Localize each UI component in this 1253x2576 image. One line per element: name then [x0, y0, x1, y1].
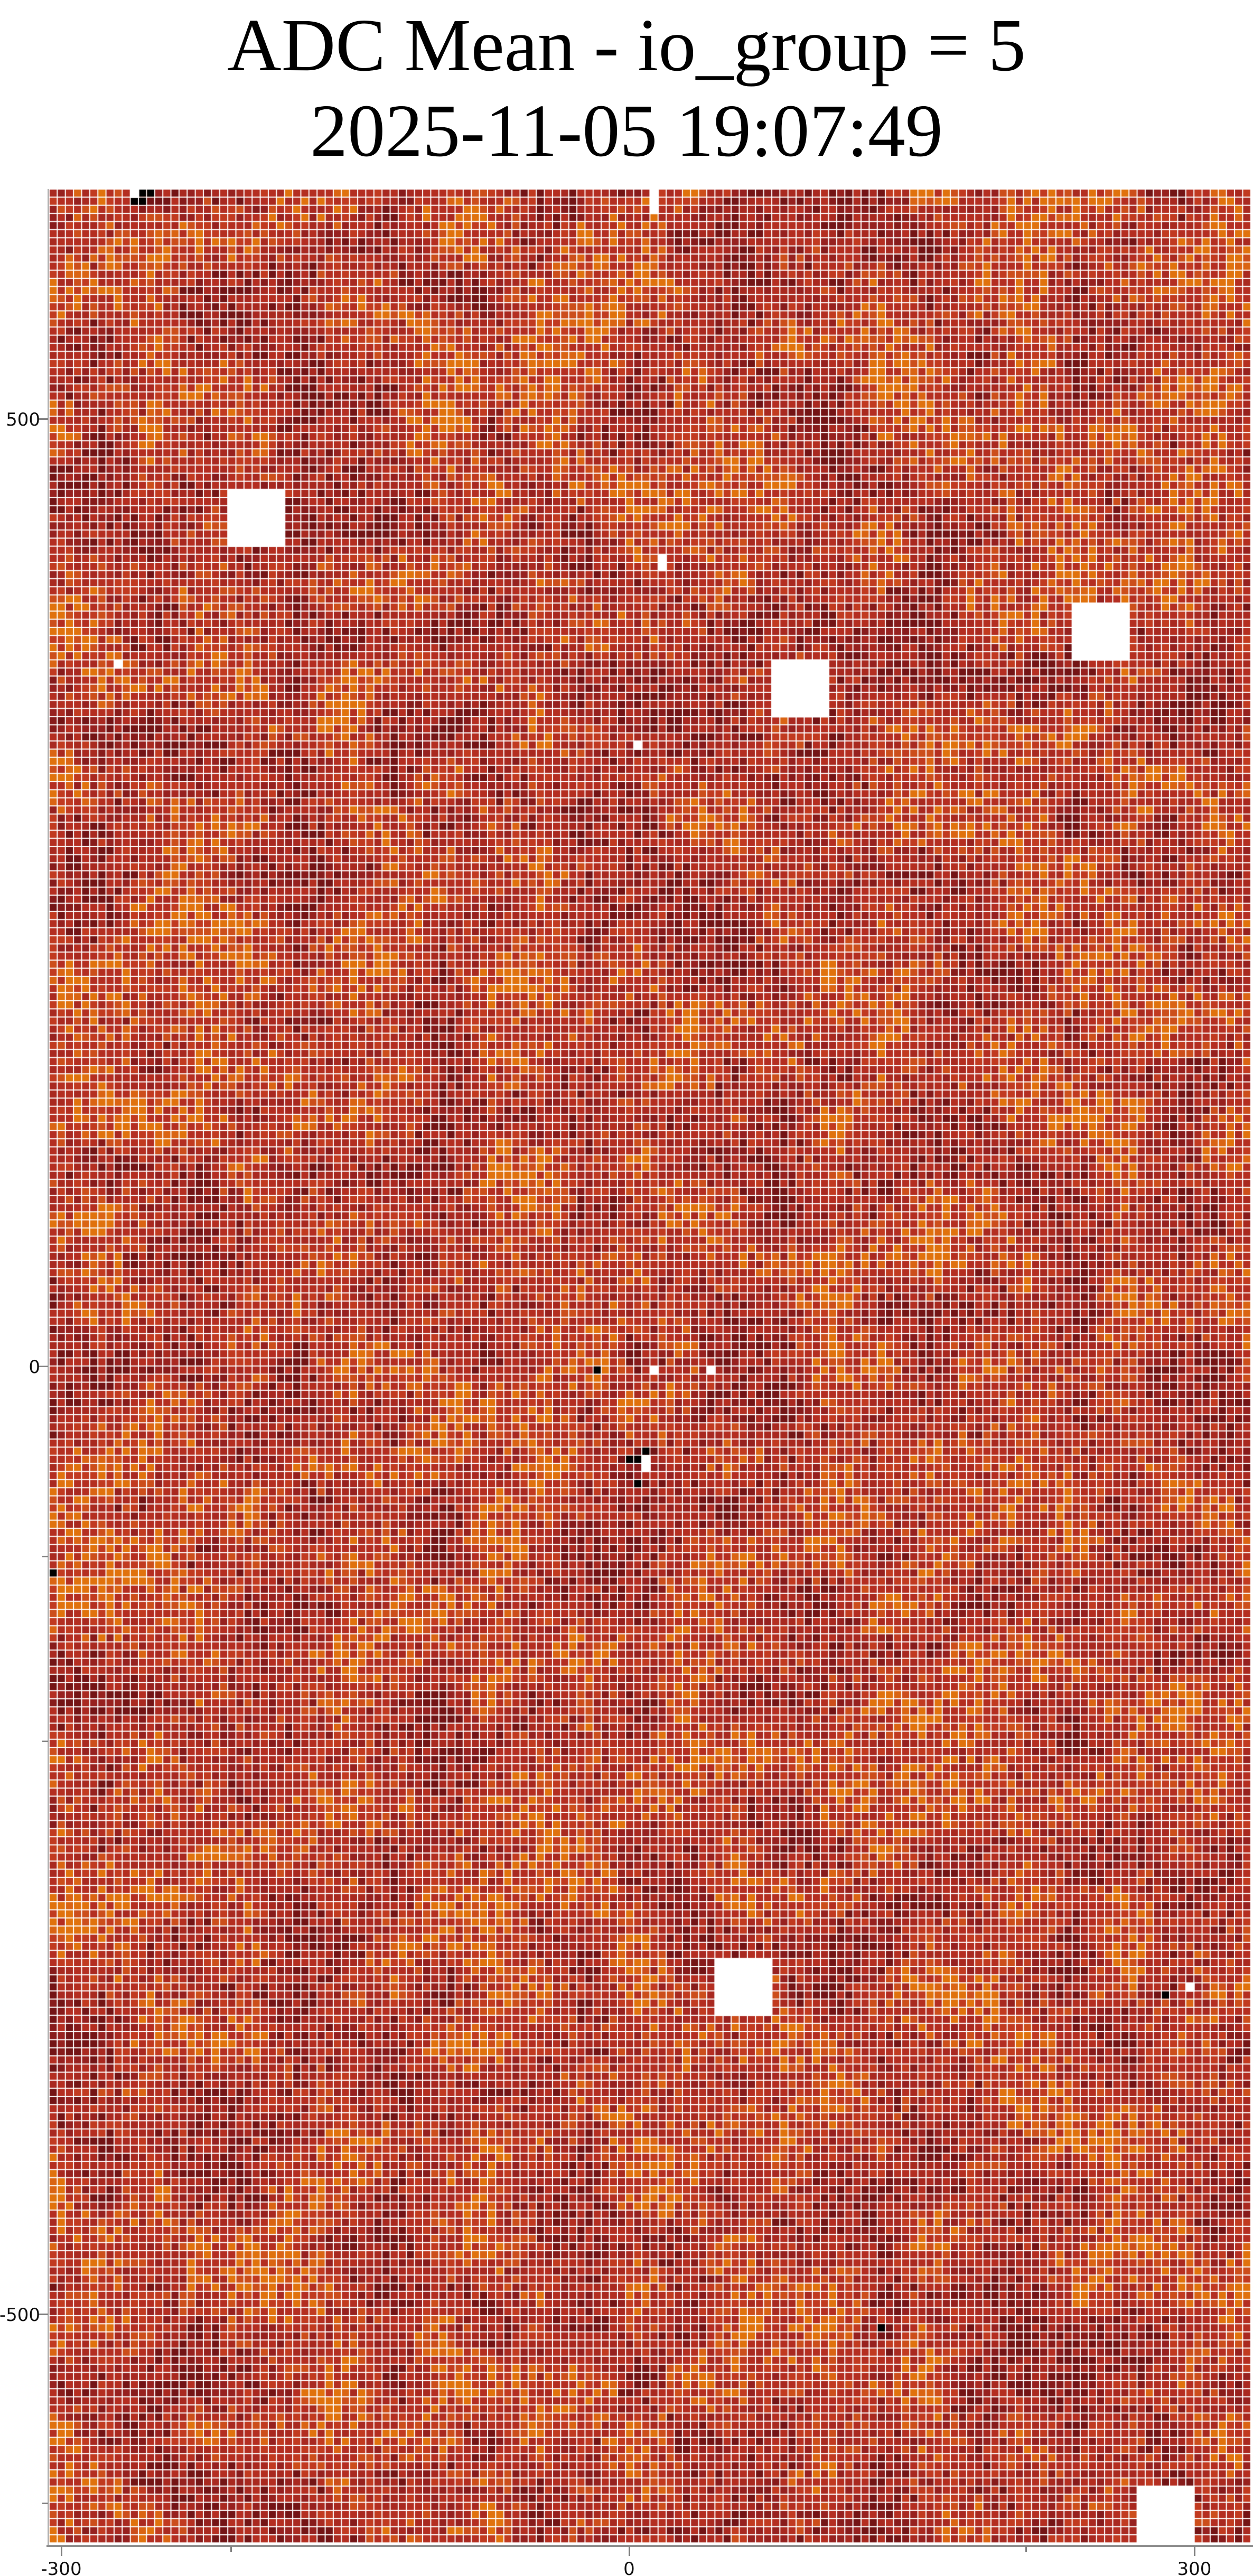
- x-tick: [629, 2546, 630, 2556]
- heatmap-canvas: [0, 0, 1253, 2576]
- chart-subtitle: 2025-11-05 19:07:49: [0, 93, 1253, 168]
- x-minor-tick: [230, 2546, 232, 2552]
- x-axis-spine: [46, 2545, 1253, 2547]
- chart-title: ADC Mean - io_group = 5: [0, 7, 1253, 82]
- y-axis-spine: [48, 189, 49, 2545]
- x-tick-label: 0: [576, 2560, 682, 2576]
- y-tick-label: 500: [0, 411, 40, 429]
- figure: ADC Mean - io_group = 5 2025-11-05 19:07…: [0, 0, 1253, 2576]
- y-minor-tick: [42, 2503, 48, 2504]
- y-tick-label: 0: [0, 1358, 40, 1376]
- x-tick: [61, 2546, 62, 2556]
- x-tick-label: -300: [8, 2560, 114, 2576]
- y-minor-tick: [42, 1556, 48, 1557]
- x-minor-tick: [1025, 2546, 1027, 2552]
- y-tick-label: -500: [0, 2306, 40, 2324]
- x-tick-label: 300: [1142, 2560, 1247, 2576]
- y-minor-tick: [42, 1741, 48, 1742]
- x-tick: [1194, 2546, 1195, 2556]
